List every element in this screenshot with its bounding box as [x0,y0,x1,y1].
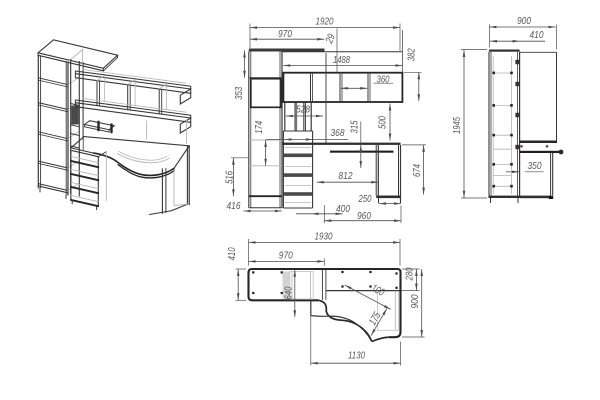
svg-text:382: 382 [405,48,417,61]
svg-text:640: 640 [282,286,294,299]
svg-text:1920: 1920 [316,16,334,28]
svg-text:410: 410 [226,247,238,260]
svg-text:1488: 1488 [333,54,350,66]
svg-text:174: 174 [253,121,265,134]
svg-text:960: 960 [357,210,371,222]
svg-text:400: 400 [336,203,350,215]
svg-text:360: 360 [377,74,390,86]
svg-text:970: 970 [278,28,292,40]
svg-text:410: 410 [530,29,544,41]
svg-text:250: 250 [358,193,372,205]
svg-text:350: 350 [528,160,542,172]
svg-text:280: 280 [403,267,415,281]
svg-text:500: 500 [377,116,389,129]
svg-text:353: 353 [233,87,245,100]
svg-text:368: 368 [331,127,345,139]
svg-text:1130: 1130 [348,350,365,362]
svg-text:970: 970 [279,249,293,261]
svg-text:1945: 1945 [451,117,463,134]
svg-text:900: 900 [409,294,421,308]
svg-text:315: 315 [348,120,360,133]
svg-text:528: 528 [296,103,310,115]
svg-text:674: 674 [411,164,423,177]
svg-text:1930: 1930 [315,230,333,242]
svg-text:516: 516 [224,171,236,184]
svg-text:416: 416 [227,200,241,212]
svg-text:900: 900 [517,15,531,27]
svg-text:812: 812 [339,170,353,182]
